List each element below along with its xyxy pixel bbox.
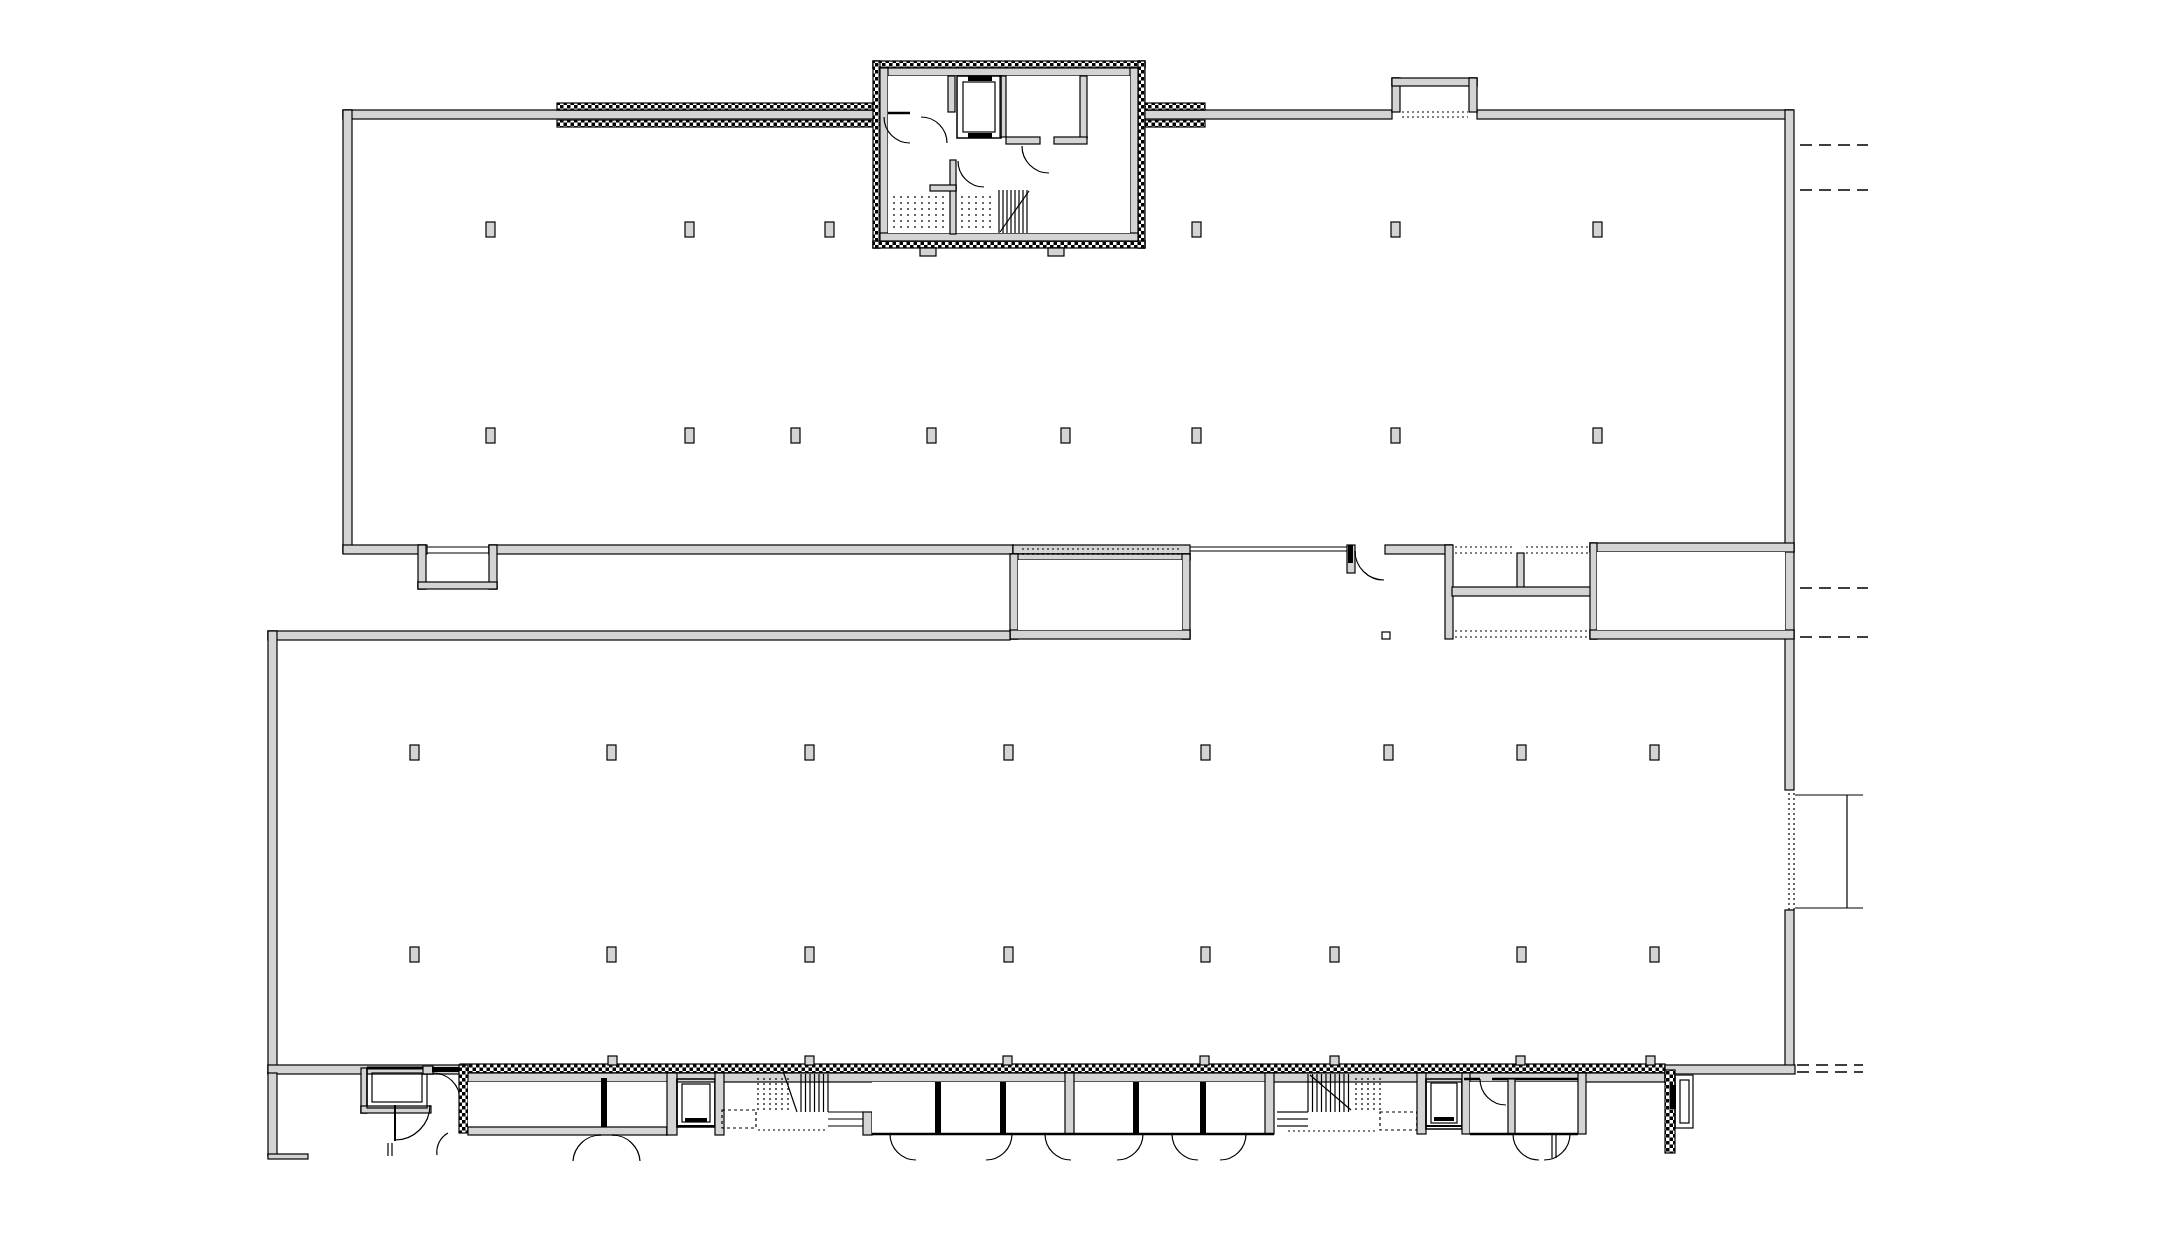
- door-arc: [1172, 1134, 1198, 1160]
- column: [1517, 745, 1526, 760]
- strip-pier: [1265, 1073, 1274, 1134]
- door-arc: [1513, 1134, 1539, 1160]
- core-partition: [1080, 76, 1087, 138]
- column: [1384, 745, 1393, 760]
- floor-plan-drawing: [0, 0, 2182, 1260]
- core-partition: [1006, 137, 1040, 144]
- core-partition: [1054, 137, 1087, 144]
- door-arc: [890, 1134, 916, 1160]
- wall-tab-column: [1200, 1056, 1209, 1065]
- wall-tab-column: [1003, 1056, 1012, 1065]
- lower-hall-left-wall: [268, 631, 277, 1073]
- left-wall-stub: [268, 1073, 277, 1156]
- column: [1391, 428, 1400, 443]
- right-wall-upper: [1785, 110, 1794, 790]
- strip-pier: [1065, 1073, 1074, 1134]
- column: [410, 947, 419, 962]
- column: [1004, 745, 1013, 760]
- storage-room-interior: [468, 1082, 667, 1127]
- wall-tab-column: [608, 1056, 617, 1065]
- cell-divider-black: [1133, 1082, 1139, 1134]
- door-leaf-black: [1348, 545, 1353, 563]
- column: [1650, 947, 1659, 962]
- core-footing-tab: [920, 248, 936, 256]
- wall-tab-column: [1646, 1056, 1655, 1065]
- core-hatch-wall: [873, 61, 880, 248]
- right-wall-lower: [1785, 910, 1794, 1073]
- lower-hall-top-wall: [268, 631, 1010, 640]
- top-wall-hatch-band: [557, 120, 873, 127]
- core-inner-wall: [880, 68, 1138, 76]
- column: [1517, 947, 1526, 962]
- column: [1650, 745, 1659, 760]
- extension-room-step: [1013, 554, 1190, 560]
- notch-top-wall: [1392, 78, 1477, 86]
- column: [1201, 745, 1210, 760]
- column: [607, 947, 616, 962]
- right-rooms-interior: [1470, 1082, 1578, 1134]
- strip-pier: [1417, 1073, 1426, 1134]
- exterior-shaft-inner: [1680, 1080, 1689, 1123]
- column: [1330, 947, 1339, 962]
- stair-flight-dashed: [1380, 1112, 1417, 1130]
- elevator-door-bar: [968, 76, 992, 81]
- core-interior: [888, 76, 1130, 233]
- door-arc: [1544, 1134, 1570, 1160]
- column: [685, 428, 694, 443]
- core-partition: [948, 76, 955, 112]
- extension-room-interior: [1018, 560, 1182, 630]
- column: [791, 428, 800, 443]
- recess-bottom-wall: [418, 582, 497, 589]
- mid-band-wall: [1385, 545, 1452, 554]
- door-arc: [573, 1135, 601, 1161]
- top-wall-hatch-band: [1145, 120, 1205, 127]
- column: [607, 745, 616, 760]
- column: [410, 745, 419, 760]
- extension-room-bottom-wall: [1010, 630, 1190, 639]
- upper-hall-left-wall: [343, 110, 352, 553]
- stall-bottom-wall: [1452, 587, 1592, 596]
- upper-hall-bottom-wall-left: [343, 545, 427, 554]
- core-hatch-wall: [873, 61, 1145, 68]
- room-divider-wall: [1508, 1079, 1515, 1134]
- core-footing-tab: [1048, 248, 1064, 256]
- strip-pier: [667, 1073, 677, 1135]
- strip-pier: [715, 1073, 724, 1135]
- door-arc: [1045, 1134, 1071, 1160]
- upper-hall-top-wall-left: [343, 110, 1392, 119]
- right-room-left-wall: [1590, 543, 1597, 639]
- left-wall-stub-foot: [268, 1154, 308, 1159]
- vestibule-jamb-block: [423, 1066, 433, 1074]
- notch-right-wall: [1469, 78, 1477, 112]
- top-wall-hatch-band: [1145, 103, 1205, 110]
- column: [1201, 947, 1210, 962]
- strip-hatch-wall: [1665, 1070, 1675, 1153]
- column: [805, 947, 814, 962]
- door-arc: [433, 1073, 460, 1100]
- lower-hall-bottom-wall-hatch: [460, 1064, 1665, 1073]
- wall-tab-column: [805, 1056, 814, 1065]
- storage-divider-black: [601, 1078, 607, 1128]
- column: [685, 222, 694, 237]
- extension-room-right-wall: [1182, 554, 1190, 639]
- column: [825, 222, 834, 237]
- door-arc: [1220, 1134, 1246, 1160]
- column: [1593, 222, 1602, 237]
- floor-plan-page: [0, 0, 2182, 1260]
- door-arc: [612, 1135, 640, 1161]
- upper-hall-bottom-wall-mid: [489, 545, 1013, 554]
- cell-divider-black: [1000, 1082, 1006, 1134]
- wall-tab-column: [1516, 1056, 1525, 1065]
- core-inner-wall: [880, 68, 888, 241]
- strip-pier: [863, 1112, 872, 1135]
- cell-divider-black: [935, 1082, 941, 1134]
- core-inner-wall: [1130, 68, 1138, 241]
- column: [1061, 428, 1070, 443]
- right-room-bottom-wall: [1590, 630, 1794, 639]
- elevator-car: [682, 1084, 710, 1122]
- core-hatch-wall: [1138, 61, 1145, 248]
- elevator-door-bar: [685, 1118, 707, 1122]
- cell-divider-black: [1200, 1082, 1206, 1134]
- strip-top-wall: [460, 1073, 1665, 1082]
- door-arc: [986, 1134, 1012, 1160]
- column: [1593, 428, 1602, 443]
- strip-wall: [1578, 1073, 1586, 1134]
- door-arc: [1355, 551, 1384, 580]
- column: [486, 222, 495, 237]
- core-partition: [950, 160, 956, 234]
- column: [805, 745, 814, 760]
- door-arc: [1117, 1134, 1143, 1160]
- extension-room-left-wall: [1010, 554, 1018, 639]
- top-wall-hatch-band: [557, 103, 873, 110]
- strip-wall: [1462, 1073, 1470, 1134]
- elevator-door-bar: [968, 133, 992, 138]
- vestibule-inner: [372, 1073, 422, 1102]
- vestibule-lintel-black: [432, 1067, 460, 1072]
- stair-flight-dashed: [722, 1110, 756, 1128]
- column: [1192, 222, 1201, 237]
- core-hatch-wall: [873, 241, 1145, 248]
- right-room-interior: [1597, 552, 1785, 630]
- core-inner-wall: [880, 233, 1138, 241]
- small-column-square: [1382, 632, 1390, 639]
- column: [1192, 428, 1201, 443]
- door-arc: [437, 1133, 448, 1155]
- lower-hall-bottom-wall-right: [1665, 1065, 1795, 1074]
- exterior-shaft-outer: [1675, 1075, 1693, 1128]
- elevator-door-bar: [1434, 1117, 1454, 1121]
- right-room-top-wall: [1590, 543, 1794, 552]
- storage-bottom-wall: [468, 1127, 667, 1135]
- upper-hall-top-wall-right: [1477, 110, 1793, 119]
- column: [486, 428, 495, 443]
- column: [1004, 947, 1013, 962]
- strip-hatch-wall: [459, 1065, 468, 1133]
- column: [1391, 222, 1400, 237]
- wall-tab-column: [1330, 1056, 1339, 1065]
- core-partition: [930, 185, 956, 191]
- column: [927, 428, 936, 443]
